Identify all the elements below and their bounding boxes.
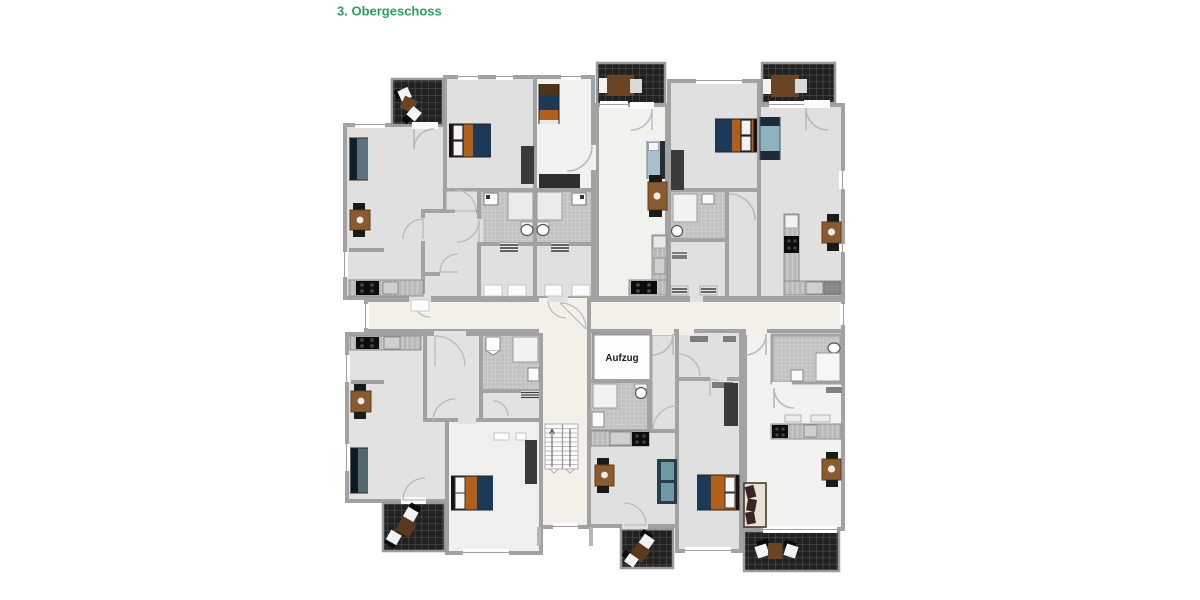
svg-text:Aufzug: Aufzug xyxy=(605,353,638,364)
svg-text:3. Obergeschoss: 3. Obergeschoss xyxy=(337,4,442,19)
